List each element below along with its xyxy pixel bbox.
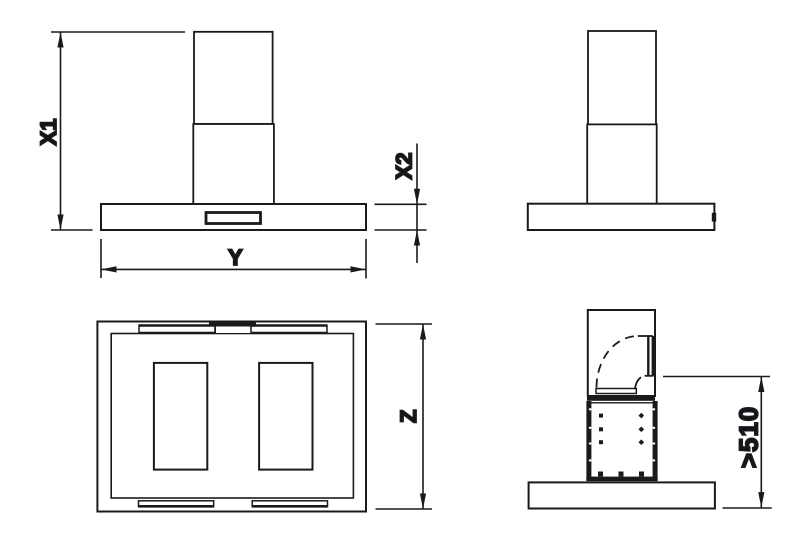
svg-text:>510: >510 [734, 406, 764, 469]
svg-text:Z: Z [396, 410, 421, 423]
svg-text:Y: Y [228, 245, 243, 270]
svg-text:X1: X1 [36, 119, 61, 146]
svg-text:X2: X2 [392, 153, 417, 180]
